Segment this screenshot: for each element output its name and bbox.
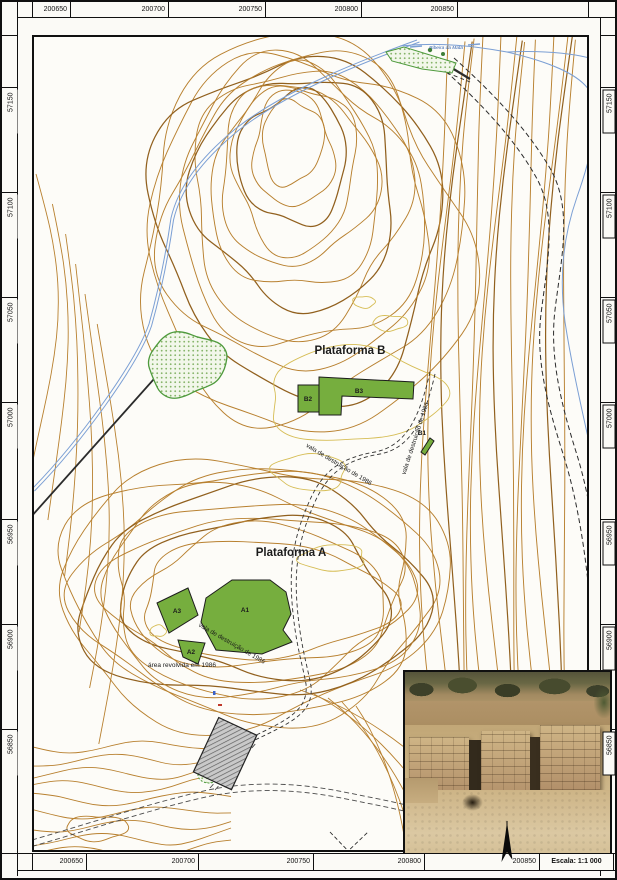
photo-wall-right: [540, 725, 599, 790]
coordinate-band-top: 200650200700200750200800200850: [2, 2, 615, 18]
area-label-b2: B2: [304, 396, 313, 403]
photo-rubble: [405, 778, 438, 803]
photo-dark-pit: [462, 794, 483, 811]
coord-box-empty: [458, 2, 589, 17]
tree-symbol: [441, 52, 445, 56]
coord-label-top-3: 200800: [266, 2, 362, 17]
coord-label-bottom-4: 200850: [425, 854, 540, 870]
coord-label-right-0: 57150: [603, 89, 616, 133]
coord-label-bottom-3: 200800: [314, 854, 425, 870]
coordinate-band-bottom: 200650200700200750200800200850Escala: 1:…: [2, 853, 615, 871]
coord-label-left-1: 57100: [5, 194, 18, 238]
coord-label-top-2: 200750: [169, 2, 266, 17]
area-label-b3: B3: [355, 388, 364, 395]
coord-label-right-2: 57050: [603, 299, 616, 343]
coord-label-right-3: 57000: [603, 404, 616, 448]
survey-mark-red: [218, 704, 222, 706]
area-label-a3: A3: [173, 608, 182, 615]
photo-shadow-gap: [530, 737, 540, 792]
map-sheet: Plataforma B Plataforma A vala de destru…: [0, 0, 617, 880]
coord-label-right-5: 56900: [603, 626, 616, 670]
platform-a-label: Plataforma A: [256, 547, 327, 559]
coord-label-bottom-2: 200750: [199, 854, 314, 870]
disturbed-area-label: área revolvida em 1986: [148, 662, 216, 669]
coord-label-left-3: 57000: [5, 404, 18, 448]
coord-label-left-6: 56850: [5, 731, 18, 775]
coord-label-bottom-0: 200650: [32, 854, 87, 870]
coord-label-top-4: 200850: [362, 2, 458, 17]
coord-label-right-1: 57100: [603, 194, 616, 238]
photo-trees: [405, 672, 610, 704]
coord-label-right-4: 56950: [603, 521, 616, 565]
photo-far-wall: [405, 701, 610, 726]
survey-mark-blue: [213, 691, 216, 695]
photo-bush: [594, 687, 612, 717]
coord-label-left-2: 57050: [5, 299, 18, 343]
platform-b-label: Plataforma B: [315, 345, 386, 357]
coord-label-left-5: 56900: [5, 626, 18, 670]
scale-label: Escala: 1:1 000: [540, 854, 614, 870]
coord-label-left-4: 56950: [5, 521, 18, 565]
area-label-b1: B1: [418, 430, 427, 437]
area-label-a1: A1: [241, 607, 250, 614]
coord-label-top-1: 200700: [71, 2, 169, 17]
stream-name-label: Ribeira da Mata: [429, 45, 463, 51]
coord-label-bottom-1: 200700: [87, 854, 199, 870]
coord-label-right-6: 56850: [603, 731, 616, 775]
area-label-a2: A2: [187, 649, 196, 656]
coord-label-left-0: 57150: [5, 89, 18, 133]
coord-label-top-0: 200650: [32, 2, 71, 17]
north-arrow-icon: [496, 820, 518, 864]
